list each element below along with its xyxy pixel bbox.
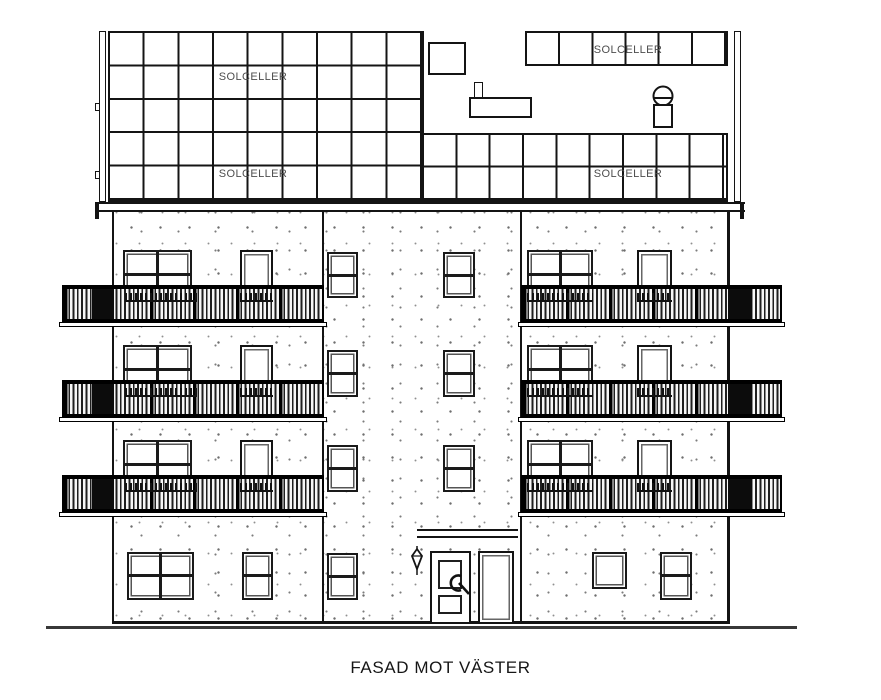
balcony-band-right-floor4 [521,285,782,328]
balcony-railing [62,285,324,322]
balcony-privacy-panel [728,289,752,319]
window-transom [329,575,356,578]
window-stair-ground [327,553,358,600]
window-transom [329,274,356,277]
solar-label-lower-right: SOLCELLER [580,168,676,180]
railing-glazing-strip [240,483,273,492]
balcony-railing [521,380,782,417]
railing-glazing-strip [527,293,593,302]
balcony-slab [59,322,327,327]
window-transom [329,372,356,375]
roof-vent-base [469,97,532,118]
balcony-band-left-floor3 [62,380,324,423]
fascia-cap-left [95,203,99,219]
entrance-lamp-icon [408,546,426,577]
roof-edge-right [734,31,741,202]
window-transom [125,273,190,276]
window-single-left-ground [242,552,273,600]
window-transom [662,574,690,577]
roof-edge-notch-upper [95,103,100,111]
roof-edge-left [99,31,106,202]
window-transom [445,274,473,277]
balcony-privacy-panel [728,479,752,509]
door-handle-icon [449,573,471,599]
solar-label-upper-left: SOLCELLER [205,71,301,83]
railing-glazing-strip [527,388,593,397]
balcony-band-right-floor3 [521,380,782,423]
window-tall-right-ground [660,552,692,600]
balcony-band-left-floor4 [62,285,324,328]
balcony-slab [59,512,327,517]
window-transom [445,372,473,375]
window-transom [529,463,591,466]
window-square-right-ground [592,552,627,589]
window-transom [129,574,192,577]
railing-glazing-strip [637,293,672,302]
balcony-railing [62,475,324,512]
window-transom [529,273,591,276]
window-transom [125,463,190,466]
balcony-slab [518,322,785,327]
window-transom [529,368,591,371]
balcony-band-right-floor2 [521,475,782,518]
balcony-privacy-panel [92,479,114,509]
window-transom [445,467,473,470]
roof-round-vent-icon [651,85,675,129]
balcony-privacy-panel [728,384,752,414]
railing-glazing-strip [240,293,273,302]
window-transom [244,574,271,577]
balcony-privacy-panel [92,289,114,319]
window-stair-right-floor3 [443,350,475,397]
roof-hatch [428,42,466,75]
window-stair-right-floor4 [443,252,475,298]
roof-fascia [95,202,745,212]
balcony-railing [62,380,324,417]
balcony-railing [521,285,782,322]
window-stair-left-floor3 [327,350,358,397]
solar-label-upper-right: SOLCELLER [580,44,676,56]
solar-panel-grid-bottom-right [424,133,728,202]
railing-glazing-strip [527,483,593,492]
window-transom [329,467,356,470]
balcony-railing [521,475,782,512]
entrance-canopy [417,529,518,538]
window-stair-left-floor2 [327,445,358,492]
window-stair-right-floor2 [443,445,475,492]
ground-line [46,626,797,629]
roof-edge-notch-lower [95,171,100,179]
window-double-left-ground [127,552,194,600]
balcony-band-left-floor2 [62,475,324,518]
solar-label-lower-left: SOLCELLER [205,168,301,180]
balcony-slab [518,512,785,517]
drawing-title: FASAD MOT VÄSTER [0,658,881,678]
railing-glazing-strip [125,388,197,397]
elevation-drawing: SOLCELLER SOLCELLER SOLCELLER SOLCELLER [0,0,881,700]
railing-glazing-strip [240,388,273,397]
railing-glazing-strip [125,293,197,302]
window-transom [125,368,190,371]
fascia-cap-right [740,203,744,219]
railing-glazing-strip [637,483,672,492]
balcony-slab [518,417,785,422]
balcony-privacy-panel [92,384,114,414]
railing-glazing-strip [637,388,672,397]
railing-glazing-strip [125,483,197,492]
entrance-sidelight [478,551,514,624]
balcony-slab [59,417,327,422]
window-stair-left-floor4 [327,252,358,298]
entrance-door [430,551,471,624]
